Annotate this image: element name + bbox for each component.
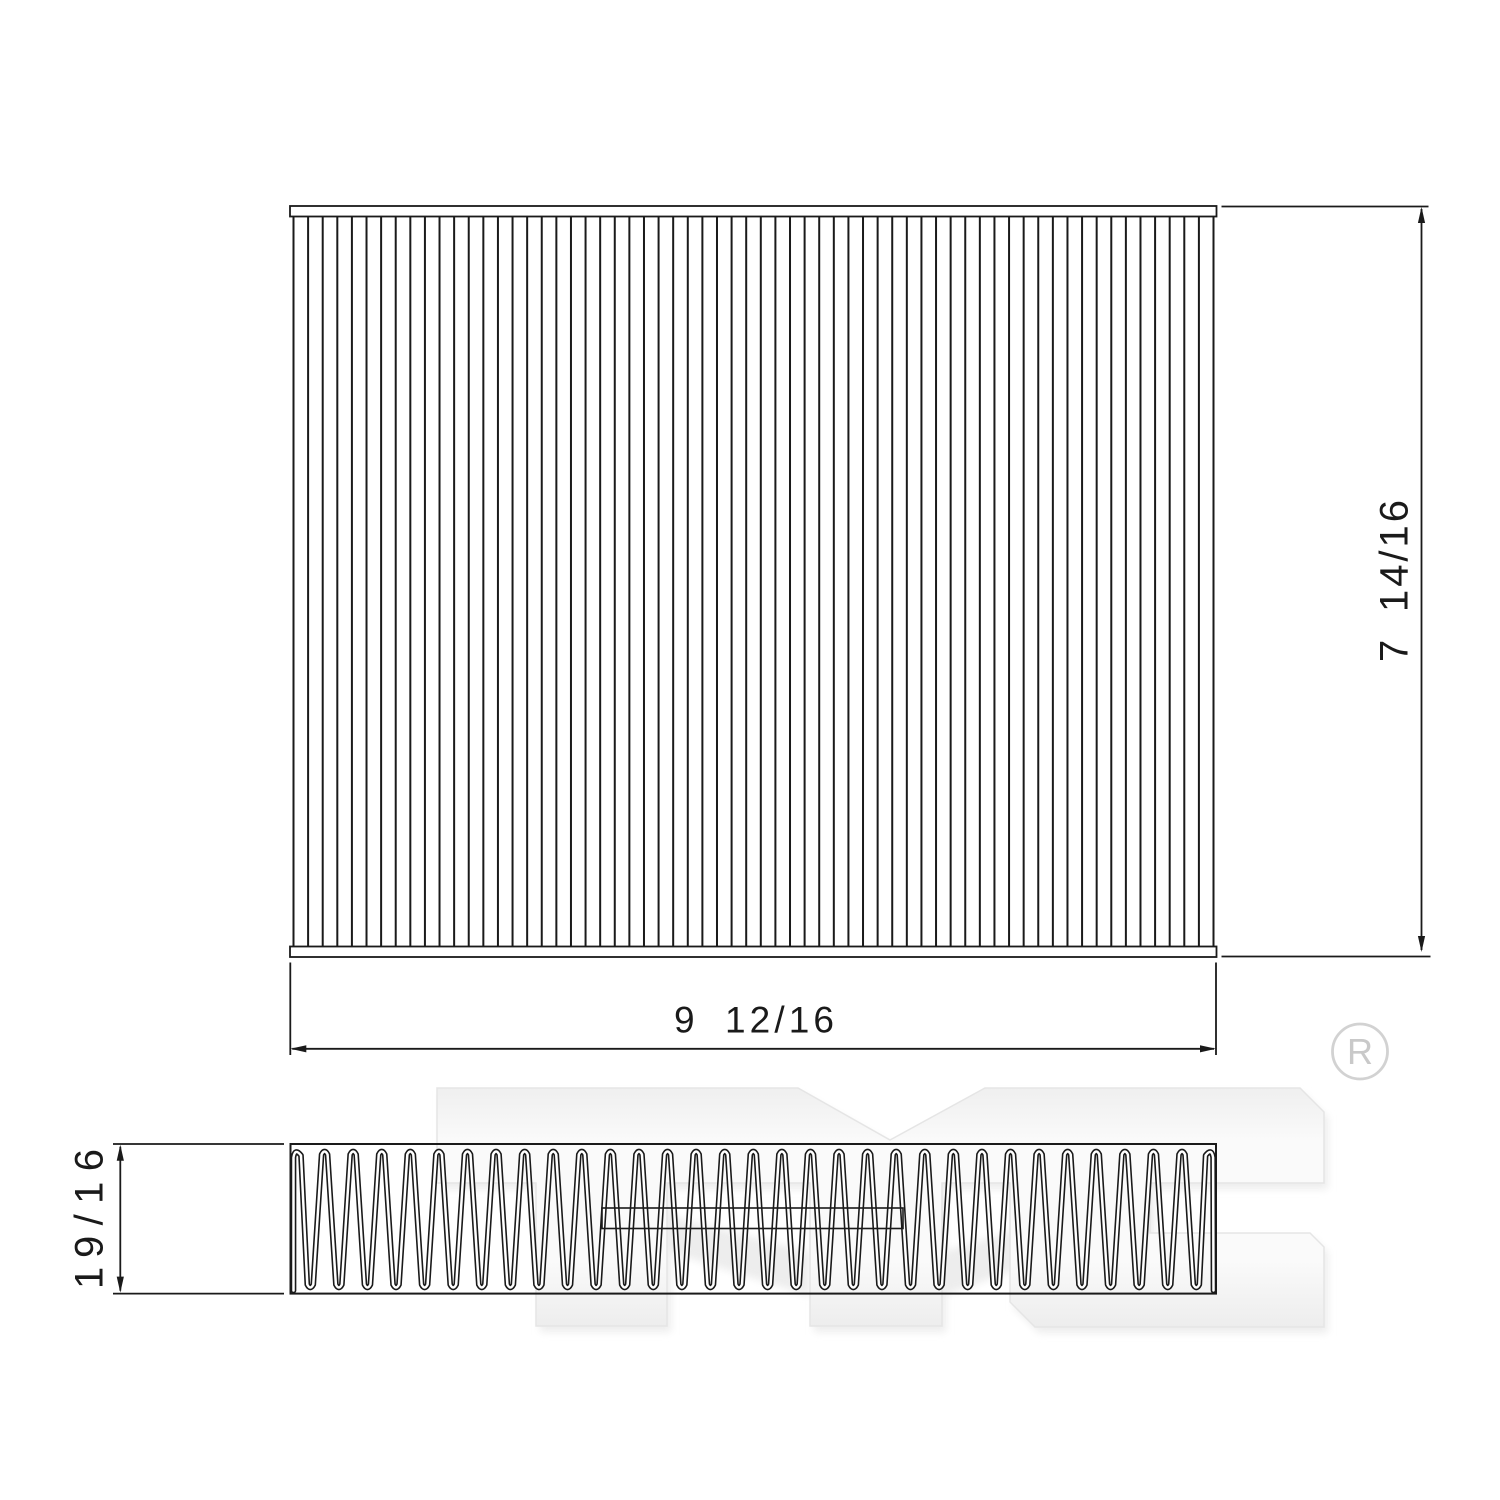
svg-text:9/16: 9/16 <box>68 1149 112 1258</box>
svg-text:1: 1 <box>68 1267 112 1289</box>
svg-text:7: 7 <box>1373 640 1417 662</box>
svg-text:14/16: 14/16 <box>1373 500 1417 612</box>
svg-text:R: R <box>1347 1031 1373 1072</box>
svg-text:12/16: 12/16 <box>725 1000 834 1041</box>
svg-text:9: 9 <box>674 1000 695 1041</box>
